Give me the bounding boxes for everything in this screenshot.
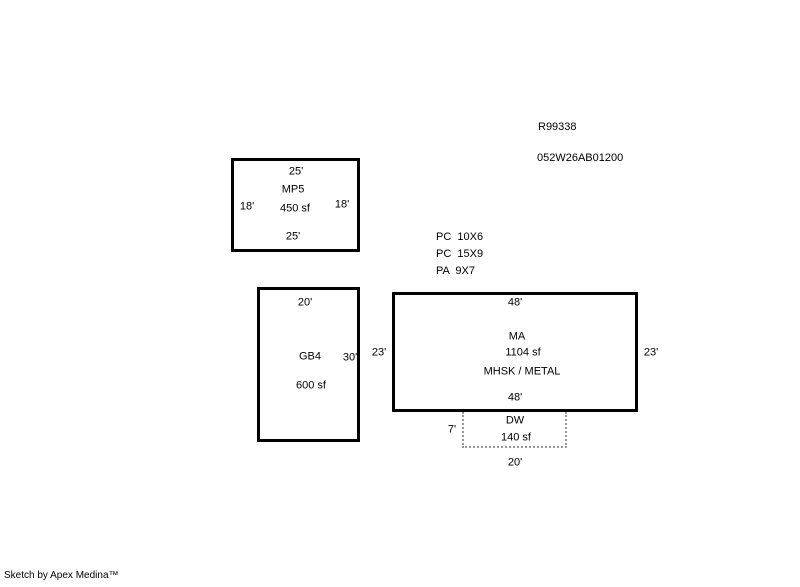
ma-left-dimension: 23': [372, 348, 386, 359]
gb4-area-label: 600 sf: [296, 381, 326, 392]
gb4-right-dimension: 30': [343, 353, 357, 364]
mp5-top-dimension: 25': [289, 167, 303, 178]
ma-bottom-dimension: 48': [508, 393, 522, 404]
mp5-building-code: MP5: [282, 185, 305, 196]
dw-bottom-dimension: 20': [508, 458, 522, 469]
ma-right-dimension: 23': [644, 348, 658, 359]
dw-left-dimension: 7': [448, 425, 456, 436]
ma-building-code: MA: [509, 332, 526, 343]
accessory-item: PA 9X7: [436, 266, 475, 277]
gb4-building-code: GB4: [299, 352, 321, 363]
ma-top-dimension: 48': [508, 298, 522, 309]
record-number-label: R99338: [538, 122, 577, 133]
sketch-credit: Sketch by Apex Medina™: [4, 570, 119, 581]
sketch-canvas: R99338 052W26AB01200 25' MP5 18' 450 sf …: [0, 0, 800, 587]
ma-area-label: 1104 sf: [505, 348, 540, 359]
gb4-top-dimension: 20': [298, 298, 312, 309]
dw-code: DW: [506, 416, 524, 427]
ma-construction-label: MHSK / METAL: [484, 367, 561, 378]
accessory-item: PC 10X6: [436, 232, 483, 243]
accessory-item: PC 15X9: [436, 249, 483, 260]
mp5-right-dimension: 18': [335, 200, 349, 211]
mp5-area-label: 450 sf: [280, 204, 310, 215]
dw-area-label: 140 sf: [501, 433, 531, 444]
mp5-left-dimension: 18': [240, 202, 254, 213]
gb4-building-outline: [257, 287, 360, 442]
mp5-bottom-dimension: 25': [286, 232, 300, 243]
parcel-id-label: 052W26AB01200: [537, 153, 623, 164]
